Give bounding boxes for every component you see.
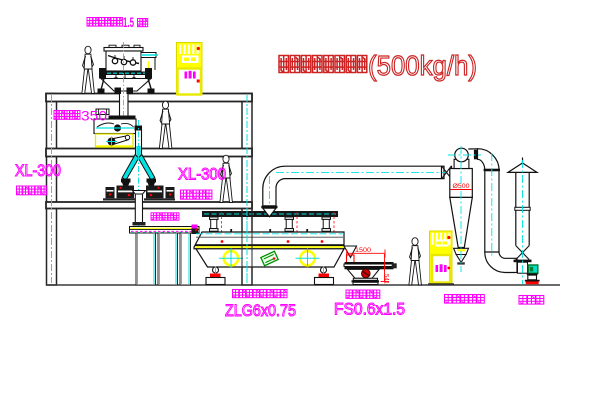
svg-text:(500kg/h): (500kg/h)	[368, 50, 477, 81]
svg-text:XL-300: XL-300	[15, 162, 61, 180]
svg-text:FS0.6x1.5: FS0.6x1.5	[334, 301, 405, 319]
svg-text:ZLG6x0.75: ZLG6x0.75	[225, 302, 296, 320]
svg-text:541: 541	[383, 274, 389, 285]
svg-text:350: 350	[81, 109, 107, 124]
svg-text:XL-300: XL-300	[178, 166, 226, 184]
svg-text:1500: 1500	[355, 247, 371, 254]
svg-text:1.5: 1.5	[123, 15, 134, 30]
